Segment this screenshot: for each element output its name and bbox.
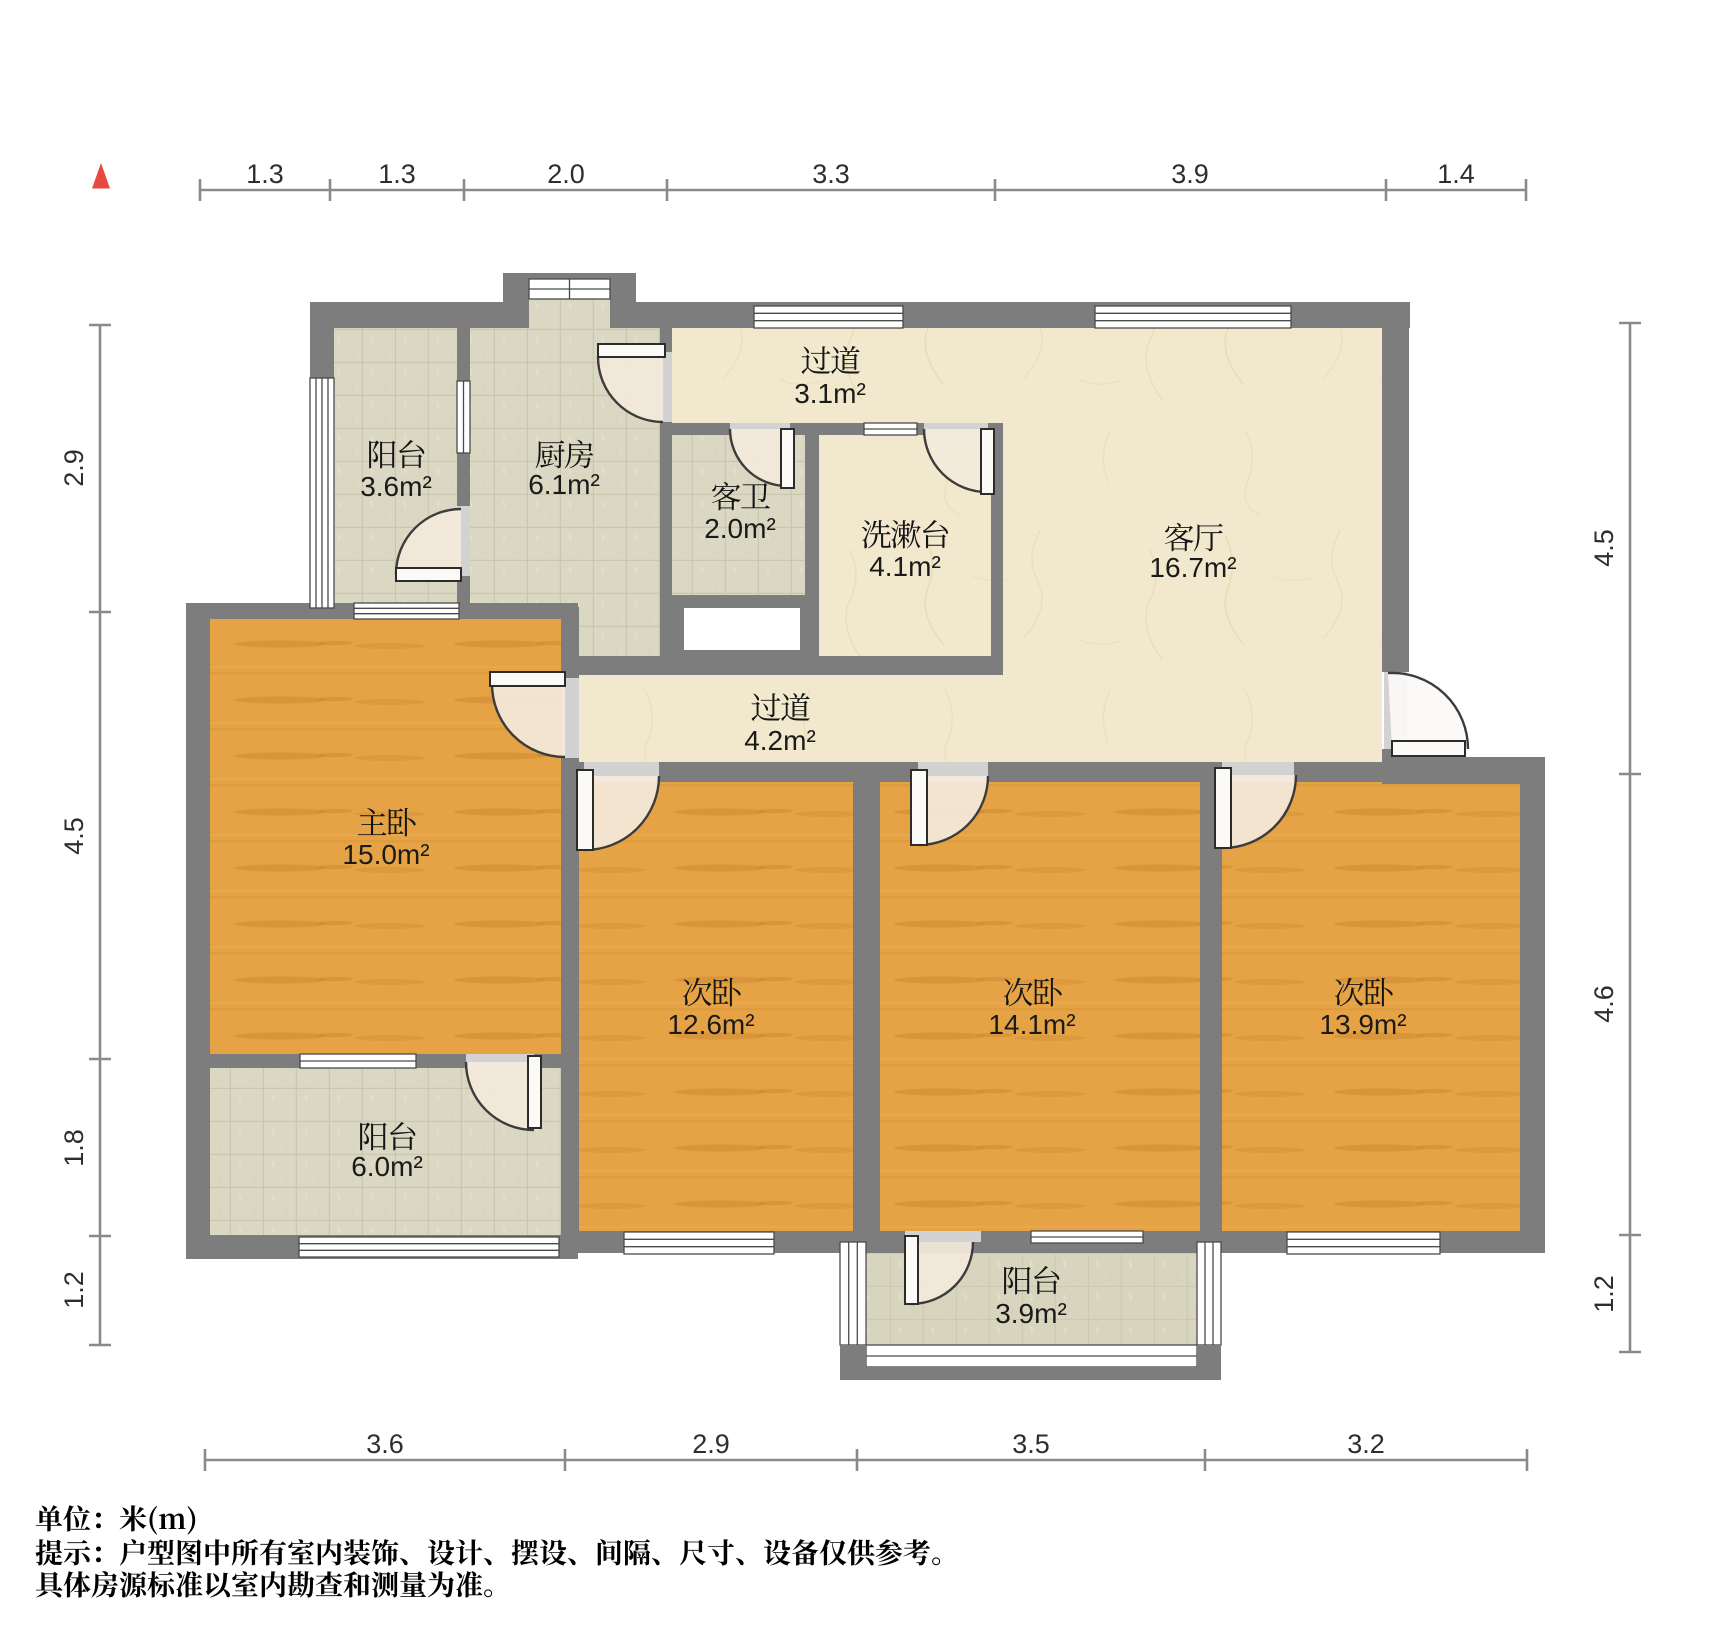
svg-text:3.9m²: 3.9m² bbox=[995, 1298, 1067, 1329]
svg-text:3.6: 3.6 bbox=[366, 1429, 404, 1459]
svg-text:4.2m²: 4.2m² bbox=[744, 725, 816, 756]
svg-text:2.0m²: 2.0m² bbox=[704, 513, 776, 544]
svg-text:3.1m²: 3.1m² bbox=[794, 378, 866, 409]
svg-text:6.1m²: 6.1m² bbox=[528, 469, 600, 500]
svg-text:3.9: 3.9 bbox=[1171, 159, 1209, 189]
svg-text:3.5: 3.5 bbox=[1012, 1429, 1050, 1459]
svg-text:15.0m²: 15.0m² bbox=[342, 839, 429, 870]
svg-text:1.8: 1.8 bbox=[59, 1129, 89, 1167]
svg-text:4.6: 4.6 bbox=[1589, 985, 1619, 1023]
svg-text:2.9: 2.9 bbox=[692, 1429, 730, 1459]
svg-text:4.1m²: 4.1m² bbox=[869, 551, 941, 582]
svg-text:1.2: 1.2 bbox=[1589, 1275, 1619, 1313]
svg-text:1.3: 1.3 bbox=[378, 159, 416, 189]
svg-text:16.7m²: 16.7m² bbox=[1149, 552, 1236, 583]
svg-text:6.0m²: 6.0m² bbox=[351, 1151, 423, 1182]
svg-text:1.3: 1.3 bbox=[246, 159, 284, 189]
svg-text:4.5: 4.5 bbox=[1589, 529, 1619, 567]
svg-text:1.4: 1.4 bbox=[1437, 159, 1475, 189]
svg-text:2.9: 2.9 bbox=[59, 449, 89, 487]
svg-text:3.2: 3.2 bbox=[1347, 1429, 1385, 1459]
svg-text:3.3: 3.3 bbox=[812, 159, 850, 189]
svg-text:4.5: 4.5 bbox=[59, 817, 89, 855]
svg-text:2.0: 2.0 bbox=[547, 159, 585, 189]
svg-text:12.6m²: 12.6m² bbox=[667, 1009, 754, 1040]
svg-text:14.1m²: 14.1m² bbox=[988, 1009, 1075, 1040]
svg-text:1.2: 1.2 bbox=[59, 1271, 89, 1309]
svg-text:3.6m²: 3.6m² bbox=[360, 471, 432, 502]
svg-text:13.9m²: 13.9m² bbox=[1319, 1009, 1406, 1040]
